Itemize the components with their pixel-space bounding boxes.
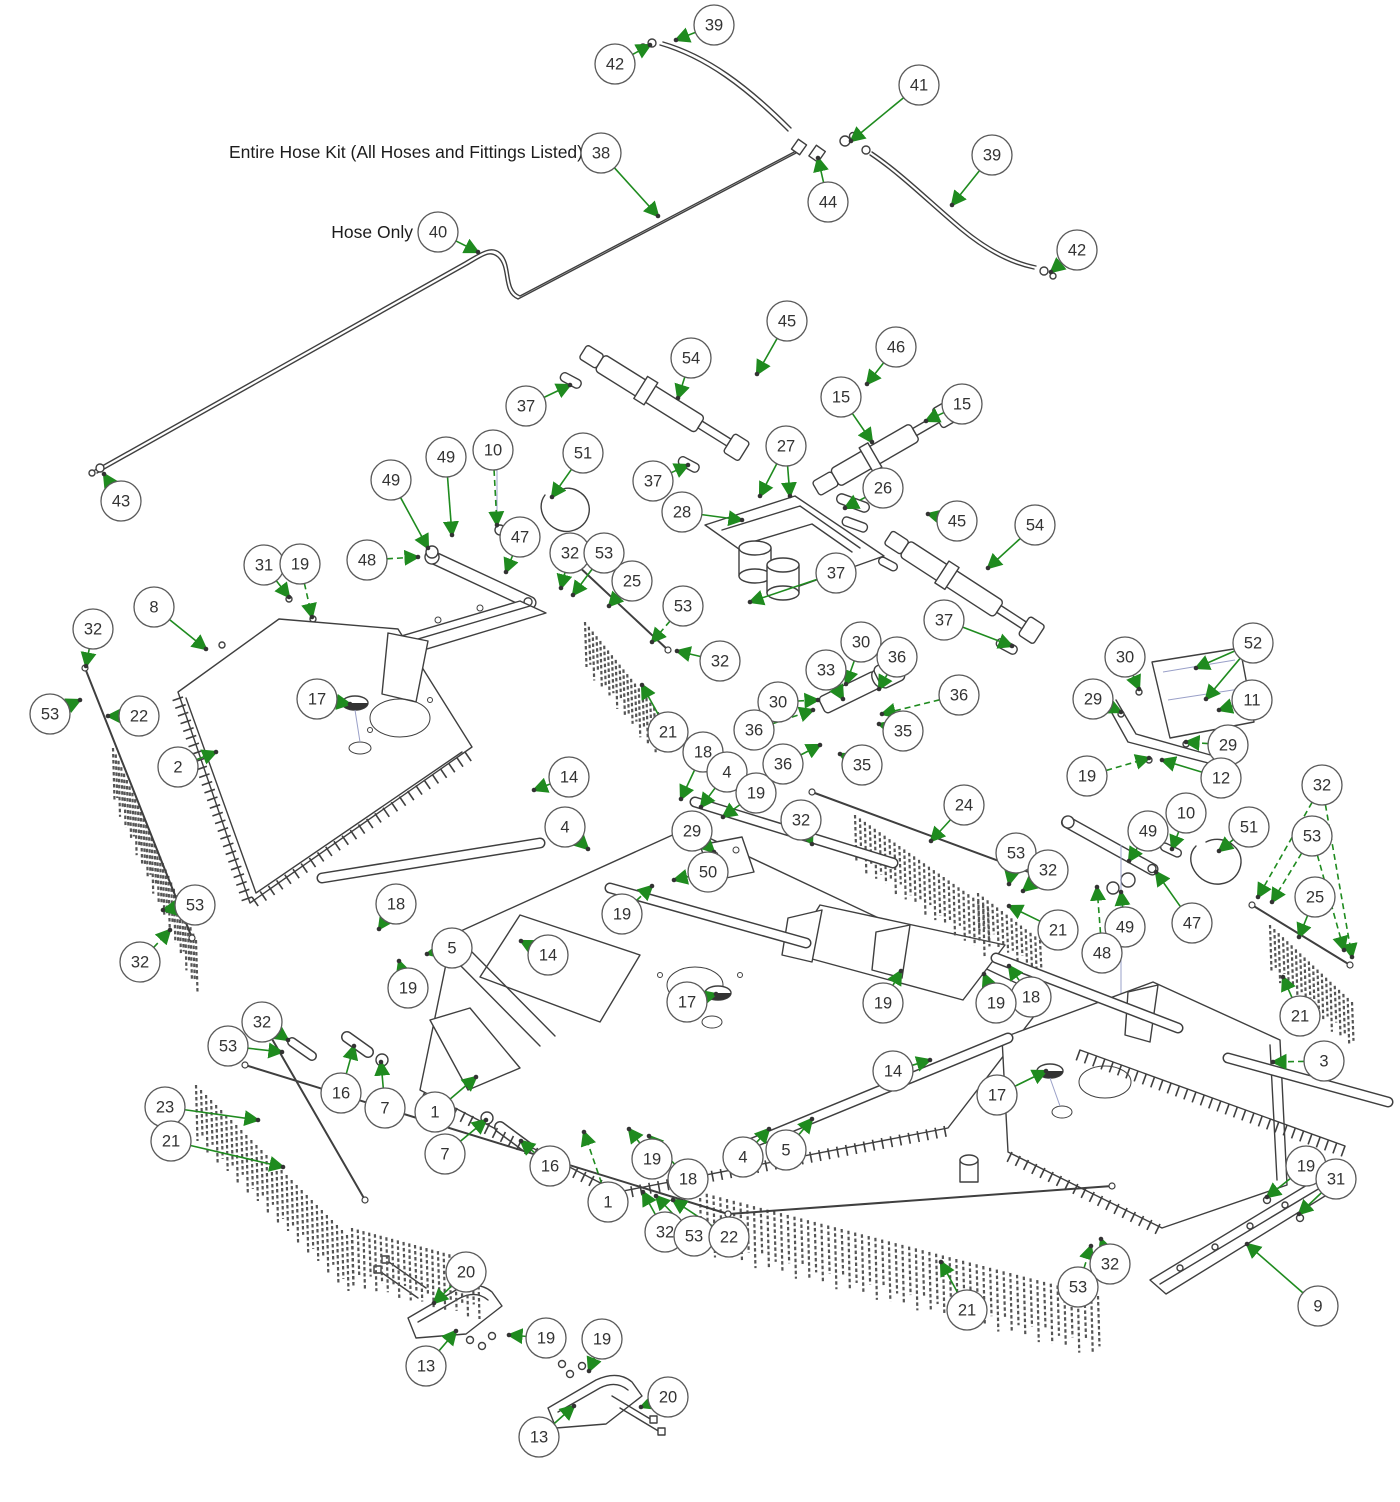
chain-link (916, 1248, 918, 1310)
chain-link (409, 1243, 411, 1300)
callout-leader (86, 649, 89, 666)
fastener-dot (352, 1044, 357, 1049)
callout-45[interactable]: 45 (937, 501, 977, 541)
callout-17[interactable]: 17 (297, 679, 337, 719)
chain-link (1287, 941, 1289, 989)
chain-link (1326, 978, 1328, 1017)
callout-29[interactable]: 29 (672, 811, 712, 851)
callout-26[interactable]: 26 (863, 468, 903, 508)
callout-32[interactable]: 32 (1028, 850, 1068, 890)
callout-41[interactable]: 41 (899, 65, 939, 105)
callout-leader (456, 241, 478, 252)
fastener-dot (899, 969, 904, 974)
skirt-tick (1333, 1143, 1337, 1153)
callout-number: 7 (380, 1100, 389, 1118)
rod-end (189, 935, 195, 941)
callout-36[interactable]: 36 (939, 675, 979, 715)
chain-link (997, 1270, 999, 1332)
callout-number: 42 (606, 56, 624, 74)
chain-link (1330, 982, 1332, 1032)
chain-link (241, 1130, 243, 1175)
callout-leader (867, 363, 884, 384)
chain-link (386, 1237, 388, 1292)
callout-number: 53 (685, 1228, 703, 1246)
callout-17[interactable]: 17 (667, 982, 707, 1022)
chain-link (226, 1115, 228, 1171)
chain-link (616, 660, 618, 709)
callout-11[interactable]: 11 (1232, 680, 1272, 720)
fastener-dot (1119, 890, 1124, 895)
callout-10[interactable]: 10 (473, 430, 513, 470)
callout-10[interactable]: 10 (1166, 793, 1206, 833)
callout-36[interactable]: 36 (763, 744, 803, 784)
callout-3[interactable]: 3 (1304, 1041, 1344, 1081)
callout-number: 18 (694, 744, 712, 762)
callout-19[interactable]: 19 (280, 544, 320, 584)
chain-link (119, 761, 121, 817)
callout-number: 18 (387, 896, 405, 914)
fastener-dot (699, 805, 704, 810)
chain-link (882, 1240, 884, 1286)
chain-link (635, 684, 637, 722)
callout-leader (851, 98, 904, 141)
chain-link (143, 818, 145, 864)
chain-link (794, 1217, 796, 1279)
callout-21[interactable]: 21 (1280, 996, 1320, 1036)
fastener-dot (582, 1130, 587, 1135)
fastener-dot (650, 884, 655, 889)
callout-number: 22 (720, 1229, 738, 1247)
chain-link (862, 1234, 864, 1292)
callout-33[interactable]: 33 (806, 650, 846, 690)
callout-number: 19 (987, 995, 1005, 1013)
fastener-dot (1204, 697, 1209, 702)
chain-link (246, 1135, 248, 1193)
fastener-dot (721, 815, 726, 820)
callout-number: 45 (948, 513, 966, 531)
chain-link (1274, 929, 1276, 968)
skirt-tick (484, 1124, 489, 1134)
chain-link (1040, 940, 1042, 972)
callout-53[interactable]: 53 (208, 1026, 248, 1066)
callout-4[interactable]: 4 (545, 807, 585, 847)
fastener-dot (84, 664, 89, 669)
callout-37[interactable]: 37 (506, 386, 546, 426)
callout-37[interactable]: 37 (633, 461, 673, 501)
skirt-tick (1292, 1128, 1296, 1138)
callout-number: 45 (778, 313, 796, 331)
fastener-dot (507, 1333, 512, 1338)
callout-53[interactable]: 53 (1292, 816, 1332, 856)
callout-number: 10 (484, 442, 502, 460)
callout-16[interactable]: 16 (530, 1146, 570, 1186)
callout-36[interactable]: 36 (877, 637, 917, 677)
chain-link (1309, 961, 1311, 998)
callout-number: 37 (644, 473, 662, 491)
callout-53[interactable]: 53 (175, 885, 215, 925)
callout-19[interactable]: 19 (602, 894, 642, 934)
callout-32[interactable]: 32 (120, 942, 160, 982)
fastener-dot (168, 928, 173, 933)
chain-link (271, 1160, 273, 1205)
fastener-dot (476, 250, 481, 255)
fastener-dot (214, 750, 219, 755)
fastener-dot (1154, 870, 1159, 875)
fastener-dot (1007, 882, 1012, 887)
chain-link (322, 1210, 324, 1257)
chain-link (132, 793, 134, 837)
callout-number: 3 (1319, 1053, 1328, 1071)
fastener-dot (870, 440, 875, 445)
callout-19[interactable]: 19 (526, 1318, 566, 1358)
skirt-tick (350, 830, 356, 839)
callout-53[interactable]: 53 (674, 1216, 714, 1256)
callout-40[interactable]: 40 (418, 212, 458, 252)
callout-number: 32 (84, 621, 102, 639)
callout-22[interactable]: 22 (119, 696, 159, 736)
fastener-dot (1194, 666, 1199, 671)
callout-9[interactable]: 9 (1298, 1286, 1338, 1326)
callout-number: 14 (884, 1063, 902, 1081)
callout-number: 36 (950, 687, 968, 705)
callout-number: 4 (560, 819, 569, 837)
callout-7[interactable]: 7 (365, 1088, 405, 1128)
hose-only-label: Hose Only (331, 222, 413, 242)
chain-link (287, 1175, 289, 1231)
chain-link (835, 1227, 837, 1289)
callout-number: 1 (603, 1194, 612, 1212)
callout-number: 19 (643, 1151, 661, 1169)
callout-number: 9 (1313, 1298, 1322, 1316)
callout-47[interactable]: 47 (1172, 903, 1212, 943)
callout-28[interactable]: 28 (662, 492, 702, 532)
callout-52[interactable]: 52 (1233, 623, 1273, 663)
callout-48[interactable]: 48 (1082, 933, 1122, 973)
callout-27[interactable]: 27 (766, 426, 806, 466)
callout-18[interactable]: 18 (668, 1159, 708, 1199)
callout-leader (952, 171, 980, 205)
chain-link (963, 891, 965, 941)
fastener-dot (454, 1329, 459, 1334)
callout-45[interactable]: 45 (767, 301, 807, 341)
chain-link (1335, 986, 1337, 1023)
chain-link (163, 863, 165, 915)
fastener-dot (1007, 964, 1012, 969)
callout-number: 30 (769, 694, 787, 712)
callout-47[interactable]: 47 (500, 517, 540, 557)
chain-link (312, 1200, 314, 1249)
fastener-dot (641, 1190, 646, 1195)
chain-link (256, 1145, 258, 1201)
callout-21[interactable]: 21 (151, 1121, 191, 1161)
callout-14[interactable]: 14 (528, 935, 568, 975)
chain-link (988, 900, 990, 942)
chain-link (231, 1120, 233, 1167)
fastener-dot (519, 939, 524, 944)
callout-51[interactable]: 51 (563, 433, 603, 473)
callout-48[interactable]: 48 (347, 540, 387, 580)
callout-leader (1247, 1244, 1303, 1293)
callout-1[interactable]: 1 (588, 1182, 628, 1222)
skirt-tick (383, 808, 389, 817)
callout-number: 29 (1084, 691, 1102, 709)
callout-leader (387, 557, 418, 559)
callout-number: 20 (659, 1389, 677, 1407)
callout-number: 53 (595, 545, 613, 563)
callout-35[interactable]: 35 (842, 745, 882, 785)
callout-number: 41 (910, 77, 928, 95)
callout-number: 44 (819, 194, 837, 212)
callout-35[interactable]: 35 (883, 711, 923, 751)
chain-link (889, 1241, 891, 1301)
callout-37[interactable]: 37 (924, 600, 964, 640)
callout-53[interactable]: 53 (1058, 1267, 1098, 1307)
callout-32[interactable]: 32 (700, 641, 740, 681)
chain-link (821, 1224, 823, 1282)
callout-24[interactable]: 24 (944, 785, 984, 825)
chain-link (842, 1229, 844, 1275)
callout-20[interactable]: 20 (446, 1252, 486, 1292)
callout-13[interactable]: 13 (406, 1346, 446, 1386)
skirt-tick (457, 758, 463, 767)
callout-7[interactable]: 7 (425, 1134, 465, 1174)
chain-link (929, 1252, 931, 1312)
callout-13[interactable]: 13 (519, 1417, 559, 1457)
callout-number: 53 (186, 897, 204, 915)
callout-number: 53 (674, 598, 692, 616)
fastener-dot (310, 615, 315, 620)
callout-15[interactable]: 15 (821, 377, 861, 417)
fastener-dot (1217, 708, 1222, 713)
chain-link (1300, 953, 1302, 992)
fastener-dot (675, 649, 680, 654)
callout-number: 18 (1022, 989, 1040, 1007)
callout-14[interactable]: 14 (873, 1051, 913, 1091)
callout-31[interactable]: 31 (244, 545, 284, 585)
chain-link (909, 1247, 911, 1295)
callout-number: 19 (399, 980, 417, 998)
chain-link (201, 1090, 203, 1137)
callout-number: 19 (747, 785, 765, 803)
chain-link (604, 646, 606, 686)
callout-number: 32 (1313, 777, 1331, 795)
fastener-dot (426, 546, 431, 551)
callout-number: 10 (1177, 805, 1195, 823)
callout-32[interactable]: 32 (781, 800, 821, 840)
nut-48-b (1107, 882, 1119, 894)
callout-12[interactable]: 12 (1201, 758, 1241, 798)
callout-5[interactable]: 5 (432, 928, 472, 968)
callout-number: 30 (1116, 649, 1134, 667)
chain-link (643, 693, 645, 729)
skirt-tick (460, 1112, 465, 1122)
callout-42[interactable]: 42 (1057, 230, 1097, 270)
skirt-tick (1300, 1131, 1304, 1141)
callout-36[interactable]: 36 (734, 710, 774, 750)
callout-32[interactable]: 32 (73, 609, 113, 649)
callout-18[interactable]: 18 (1011, 977, 1051, 1017)
callout-54[interactable]: 54 (1015, 505, 1055, 545)
fastener-dot (102, 472, 107, 477)
chain-link (369, 1233, 371, 1277)
callout-number: 4 (738, 1149, 747, 1167)
callout-number: 31 (1327, 1171, 1345, 1189)
callout-19[interactable]: 19 (1067, 756, 1107, 796)
callout-30[interactable]: 30 (1105, 637, 1145, 677)
callout-21[interactable]: 21 (1038, 910, 1078, 950)
fastener-dot (586, 847, 591, 852)
callout-17[interactable]: 17 (977, 1075, 1017, 1115)
callout-4[interactable]: 4 (723, 1137, 763, 1177)
callout-number: 50 (699, 864, 717, 882)
callout-leader (801, 745, 820, 755)
fastener-dot (939, 1260, 944, 1265)
callout-53[interactable]: 53 (30, 694, 70, 734)
callout-25[interactable]: 25 (1295, 877, 1335, 917)
chain-link (392, 1239, 394, 1285)
callout-16[interactable]: 16 (321, 1073, 361, 1113)
callout-38[interactable]: 38 (581, 133, 621, 173)
callout-number: 49 (1139, 823, 1157, 841)
callout-19[interactable]: 19 (388, 968, 428, 1008)
callout-51[interactable]: 51 (1229, 807, 1269, 847)
callout-30[interactable]: 30 (841, 622, 881, 662)
skirt-tick (465, 752, 471, 761)
chain-link (1044, 1282, 1046, 1328)
skirt-tick (367, 819, 373, 828)
callout-number: 38 (592, 145, 610, 163)
callout-leader (988, 539, 1020, 568)
callout-number: 19 (593, 1331, 611, 1349)
callout-39[interactable]: 39 (694, 5, 734, 45)
chain-link (855, 1233, 857, 1283)
chain-link (135, 799, 137, 855)
callout-number: 54 (682, 350, 700, 368)
callout-leader (757, 338, 777, 374)
fastener-dot (928, 1058, 933, 1063)
callout-21[interactable]: 21 (648, 712, 688, 752)
chain-link (909, 853, 911, 895)
callout-number: 12 (1212, 770, 1230, 788)
callout-number: 52 (1244, 635, 1262, 653)
skirt-tick (359, 825, 365, 834)
callout-number: 16 (541, 1158, 559, 1176)
callout-leader (1097, 887, 1100, 933)
chain-link (363, 1231, 365, 1290)
fastener-dot (377, 927, 382, 932)
chain-link (1026, 929, 1028, 969)
fastener-dot (1281, 975, 1286, 980)
callout-29[interactable]: 29 (1073, 679, 1113, 719)
callout-53[interactable]: 53 (584, 533, 624, 573)
callout-20[interactable]: 20 (648, 1377, 688, 1417)
callout-18[interactable]: 18 (376, 884, 416, 924)
callout-19[interactable]: 19 (632, 1139, 672, 1179)
callout-32[interactable]: 32 (1302, 765, 1342, 805)
skirt-tick (342, 836, 348, 845)
fastener-dot (865, 382, 870, 387)
callout-5[interactable]: 5 (766, 1130, 806, 1170)
chain-link (894, 843, 896, 895)
chain-link (1348, 998, 1350, 1044)
callout-21[interactable]: 21 (947, 1290, 987, 1330)
callout-2[interactable]: 2 (158, 747, 198, 787)
callout-39[interactable]: 39 (972, 135, 1012, 175)
chain-link (929, 867, 931, 905)
callout-42[interactable]: 42 (595, 44, 635, 84)
skirt-tick (1308, 1134, 1312, 1144)
fastener-dot (1119, 710, 1124, 715)
callout-43[interactable]: 43 (101, 481, 141, 521)
callout-19[interactable]: 19 (863, 983, 903, 1023)
callout-number: 47 (1183, 915, 1201, 933)
chain-link (168, 876, 170, 932)
fastener-dot (1044, 1069, 1049, 1074)
chain-link (1283, 937, 1285, 974)
callout-19[interactable]: 19 (976, 983, 1016, 1023)
rod-end (362, 1197, 368, 1203)
chain-link (155, 844, 157, 886)
callout-46[interactable]: 46 (876, 327, 916, 367)
skirt-tick (375, 813, 381, 822)
fastener-dot (78, 698, 83, 703)
callout-leader (677, 651, 701, 656)
chain-link (585, 622, 587, 667)
callout-50[interactable]: 50 (688, 852, 728, 892)
callout-leader (170, 620, 206, 649)
fastener-dot (639, 1405, 644, 1410)
callout-22[interactable]: 22 (709, 1217, 749, 1257)
callout-14[interactable]: 14 (549, 757, 589, 797)
callout-number: 39 (983, 147, 1001, 165)
rod-end (1109, 1183, 1115, 1189)
chain-link (444, 1253, 446, 1310)
callout-leader (561, 572, 565, 588)
chain-link (1296, 949, 1298, 995)
fastener-dot (671, 1198, 676, 1203)
fastener-dot (504, 570, 509, 575)
callout-49[interactable]: 49 (1128, 811, 1168, 851)
callout-19[interactable]: 19 (582, 1319, 622, 1359)
callout-23[interactable]: 23 (145, 1087, 185, 1127)
callout-15[interactable]: 15 (942, 384, 982, 424)
chain-link (608, 650, 610, 695)
chain-link (206, 1095, 208, 1155)
callout-leader (671, 465, 688, 473)
chain-link (754, 1206, 756, 1268)
callout-number: 30 (852, 634, 870, 652)
callout-leader (818, 158, 824, 182)
callout-37[interactable]: 37 (816, 553, 856, 593)
callout-49[interactable]: 49 (426, 437, 466, 477)
chain-link (761, 1208, 763, 1254)
fastener-dot (204, 647, 209, 652)
callout-number: 17 (678, 994, 696, 1012)
fastener-dot (844, 682, 849, 687)
callout-32[interactable]: 32 (242, 1002, 282, 1042)
callout-54[interactable]: 54 (671, 338, 711, 378)
fastener-dot (740, 518, 745, 523)
callout-leader (304, 584, 312, 617)
callout-1[interactable]: 1 (415, 1092, 455, 1132)
callout-8[interactable]: 8 (134, 587, 174, 627)
callout-31[interactable]: 31 (1316, 1159, 1356, 1199)
callout-number: 1 (430, 1104, 439, 1122)
callout-53[interactable]: 53 (663, 586, 703, 626)
chain-link (992, 904, 994, 934)
callout-44[interactable]: 44 (808, 182, 848, 222)
callout-49[interactable]: 49 (371, 460, 411, 500)
